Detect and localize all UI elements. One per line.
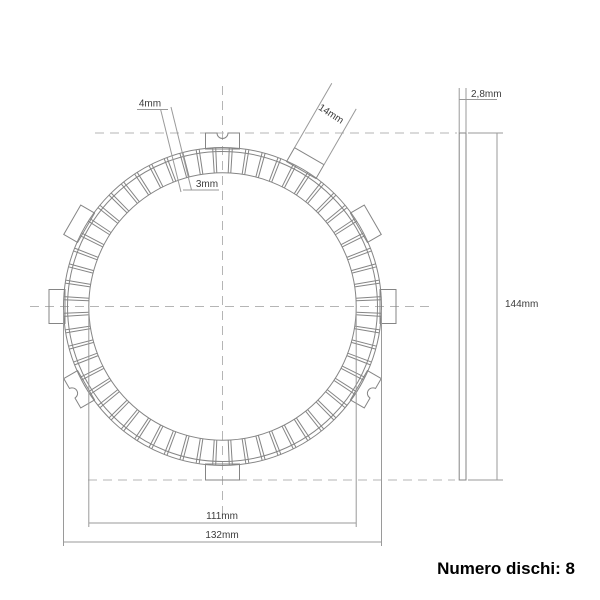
pad-groove-line: [137, 172, 151, 193]
pad-groove-line: [341, 368, 363, 380]
pad-groove-line: [109, 195, 127, 213]
drawing-canvas: 4mm 3mm 14mm 2,8mm 111mm 132mm 144mm Num…: [0, 0, 600, 600]
pad-groove-line: [282, 426, 293, 449]
pad-groove-line: [335, 378, 356, 392]
pad-groove-line: [98, 390, 118, 406]
dim-3mm-label: 3mm: [196, 179, 218, 190]
pad-groove-line: [80, 366, 103, 377]
pad-groove-line: [294, 419, 308, 440]
pad-groove-line: [152, 164, 163, 187]
pad-groove-line: [294, 172, 308, 193]
pad-groove-line: [342, 236, 365, 247]
dim-111mm-label: 111mm: [206, 511, 238, 522]
pad-groove-line: [88, 221, 109, 235]
pad-groove-line: [135, 174, 149, 195]
pad-groove-line: [284, 166, 296, 188]
pad-groove-line: [296, 174, 310, 195]
pad-groove-line: [111, 193, 129, 211]
pad-groove-line: [82, 233, 104, 245]
drive-tabs: [49, 133, 396, 480]
pad-groove-line: [80, 236, 103, 247]
pad-groove-line: [124, 411, 140, 431]
pad-groove-line: [306, 411, 322, 431]
pad-groove-line: [308, 184, 324, 204]
dim-14mm-label: 14mm: [316, 102, 345, 126]
pad-groove-line: [100, 392, 120, 408]
pad-groove-line: [318, 400, 336, 418]
pad-groove-line: [149, 166, 161, 188]
pad-groove-line: [90, 219, 111, 233]
pad-groove-line: [327, 390, 347, 406]
dim-4mm-label: 4mm: [139, 99, 161, 110]
pad-groove-line: [342, 366, 365, 377]
pad-groove-line: [318, 195, 336, 213]
dim-28mm-label: 2,8mm: [471, 89, 502, 100]
pad-groove-line: [135, 418, 149, 439]
pad-groove-line: [121, 410, 137, 430]
dim-144mm-label: 144mm: [505, 299, 538, 310]
groove-leader-left: [161, 109, 182, 192]
pad-groove-line: [334, 380, 355, 394]
pad-groove-line: [306, 182, 322, 202]
side-view-plate: [459, 133, 466, 480]
pad-groove-line: [316, 402, 334, 420]
dimension-labels: 4mm 3mm 14mm 2,8mm 111mm 132mm 144mm: [139, 89, 538, 541]
pad-groove-line: [326, 205, 346, 221]
technical-drawing: 4mm 3mm 14mm 2,8mm 111mm 132mm 144mm: [0, 0, 600, 600]
pad-groove-line: [334, 219, 355, 233]
pad-groove-line: [152, 426, 163, 449]
pad-groove-line: [82, 368, 104, 380]
pad-groove-line: [124, 182, 140, 202]
pad-groove-line: [109, 400, 127, 418]
pad-groove-line: [296, 418, 310, 439]
pad-groove-line: [121, 184, 137, 204]
pad-groove-line: [149, 425, 161, 447]
pad-groove-line: [335, 221, 356, 235]
pad-groove-line: [327, 208, 347, 224]
pad-groove-line: [90, 380, 111, 394]
pad-groove-line: [137, 419, 151, 440]
pad-groove-line: [308, 410, 324, 430]
disc-count-label: Numero dischi: 8: [437, 559, 575, 579]
pad-groove-line: [316, 193, 334, 211]
pad-groove-line: [98, 208, 118, 224]
pad-groove-line: [100, 205, 120, 221]
dimension-lines: [64, 83, 504, 546]
pad-groove-line: [111, 402, 129, 420]
pad-groove-line: [326, 392, 346, 408]
pad-groove-line: [282, 164, 293, 187]
pad-groove-line: [284, 425, 296, 447]
centerlines: [30, 86, 457, 516]
dim-132mm-label: 132mm: [205, 530, 238, 541]
pad-groove-line: [341, 233, 363, 245]
pad-groove-line: [88, 378, 109, 392]
side-view: [459, 133, 466, 480]
